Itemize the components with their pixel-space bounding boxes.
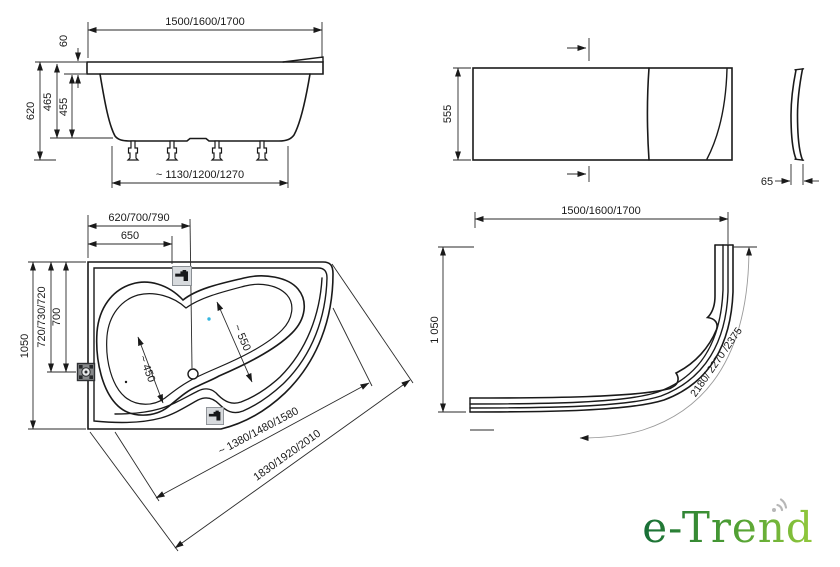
foot [212,141,222,160]
dim-label-side-to-jet-variants: 720/730/720 [36,286,48,347]
panel-face [473,68,732,160]
plan-view: 620/700/790 650 1050 720/730/720 700 [20,200,415,565]
front-panel-view: 555 65 [430,8,830,198]
logo-text: e-Trend [642,503,813,552]
side-elevation-view: 1500/1600/1700 ~ 1130/1200/1270 [20,8,340,193]
bathtub-plan-outline [88,262,333,429]
jet-dot [125,381,127,383]
foot [128,141,138,160]
dim-label-rim-height: 60 [58,35,70,47]
dimension-apron-width: 1500/1600/1700 [475,205,728,244]
tub-body [100,74,310,141]
technical-drawing-sheet: 1500/1600/1700 ~ 1130/1200/1270 [0,0,840,567]
drain-icon [188,369,198,379]
dimension-heights: 620 465 455 60 [25,35,113,160]
apron-inner-stepped-edge [470,245,717,398]
dim-label-base-span: ~ 1130/1200/1270 [156,169,244,181]
dim-label-depth-465: 465 [42,93,54,111]
dimension-edge-depth: 65 [761,164,819,188]
apron-plan-view: 1500/1600/1700 1 050 2180/ 2270 /2375 [430,200,830,445]
dim-label-depth-455: 455 [58,98,70,116]
foot [167,141,177,160]
dimension-panel-height: 555 [442,68,471,160]
dim-label-apron-depth: 1 050 [429,316,441,344]
dimension-apron-depth: 1 050 [429,247,474,412]
dimension-corner-to-filler: 650 [88,230,172,264]
support-feet [128,141,267,160]
sensor-dot [207,317,210,320]
dim-label-arc-length: 2180/ 2270 /2375 [688,325,745,399]
panel-edge-profile [791,69,804,160]
dim-label-corner-to-filler: 650 [121,230,139,242]
dimension-overall-width: 1500/1600/1700 [88,16,322,58]
tub-rim [87,62,323,74]
panel-front-outline [473,68,732,160]
faucet-icon [173,267,192,286]
dim-label-apron-width: 1500/1600/1700 [561,205,641,217]
faucet-icon [206,407,223,424]
dim-label-corner-to-drain: 620/700/790 [108,212,169,224]
dim-label-overall-depth: 1050 [19,334,31,358]
jet-nozzle-icon [78,364,95,381]
panel-corner-curve [707,69,727,159]
dim-label-edge-depth: 65 [761,176,773,188]
brand-logo: e-Trend [628,490,828,562]
dim-label-overall-width: 1500/1600/1700 [165,16,245,28]
dim-label-side-to-jet: 700 [51,308,63,326]
bathtub-side-outline [87,57,323,141]
dimension-arc-length: 2180/ 2270 /2375 [470,247,757,438]
foot [257,141,267,160]
dim-label-total-height: 620 [25,102,37,120]
dimension-depths-left: 1050 720/730/720 700 [19,262,86,429]
dim-label-panel-height: 555 [442,105,454,123]
panel-bend-line [648,68,650,160]
